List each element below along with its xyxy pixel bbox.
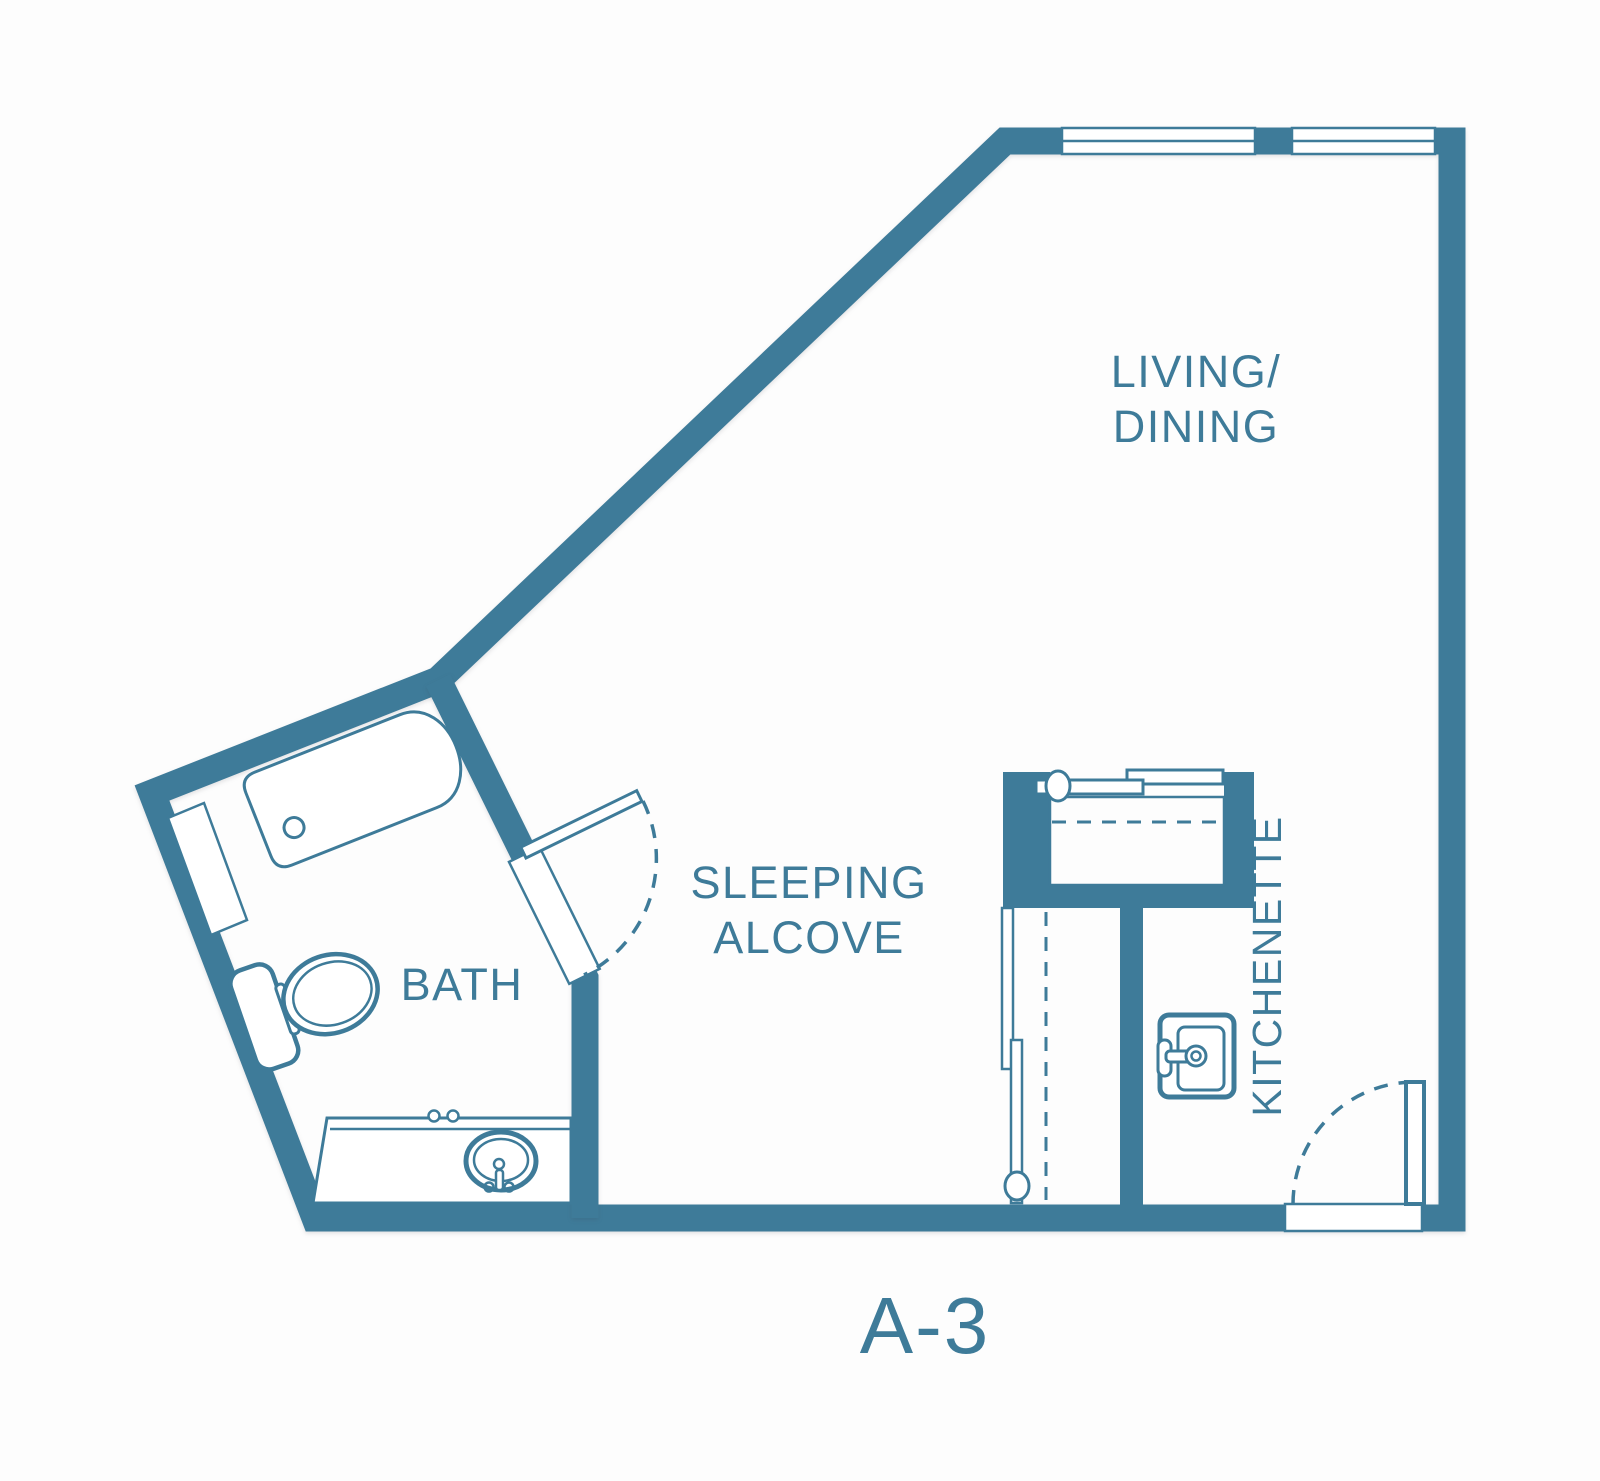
vanity-sink: [313, 1111, 571, 1204]
kitchen-sink: [1158, 1015, 1234, 1097]
closet-bottom-wall: [1003, 885, 1254, 908]
room-label-sleeping-alcove-line1: SLEEPING: [690, 857, 927, 908]
room-label-sleeping-alcove-line2: ALCOVE: [713, 912, 905, 963]
entry-door: [1285, 1082, 1424, 1231]
kitchenette-wall: [1120, 908, 1143, 1205]
unit-label: A-3: [860, 1281, 991, 1370]
room-label-living-dining-line1: LIVING/: [1111, 346, 1282, 397]
room-label-bath: BATH: [401, 959, 524, 1010]
closet-lower: [1002, 908, 1046, 1203]
closet-upper: [1003, 770, 1254, 908]
window-icon: [1062, 128, 1255, 154]
bath-door-leaf: [521, 791, 642, 858]
window-icon: [1292, 128, 1435, 154]
toilet: [227, 929, 393, 1073]
entry-doorway-opening: [1285, 1204, 1422, 1231]
bath-door: [509, 791, 656, 984]
floor-plan-page: LIVING/ DINING SLEEPING ALCOVE BATH KITC…: [0, 0, 1600, 1481]
floor-plan-svg: LIVING/ DINING SLEEPING ALCOVE BATH KITC…: [0, 0, 1600, 1481]
bath-door-swing-arc: [584, 801, 656, 975]
top-windows: [1062, 128, 1435, 154]
entry-door-swing-arc: [1293, 1082, 1415, 1204]
sliding-door-knob: [1046, 771, 1070, 801]
closet-interior: [1050, 797, 1224, 885]
entry-door-leaf: [1406, 1082, 1424, 1204]
room-label-kitchenette: KITCHENETTE: [1244, 815, 1290, 1116]
room-label-living-dining-line2: DINING: [1113, 401, 1280, 452]
sliding-door-knob: [1005, 1172, 1029, 1200]
